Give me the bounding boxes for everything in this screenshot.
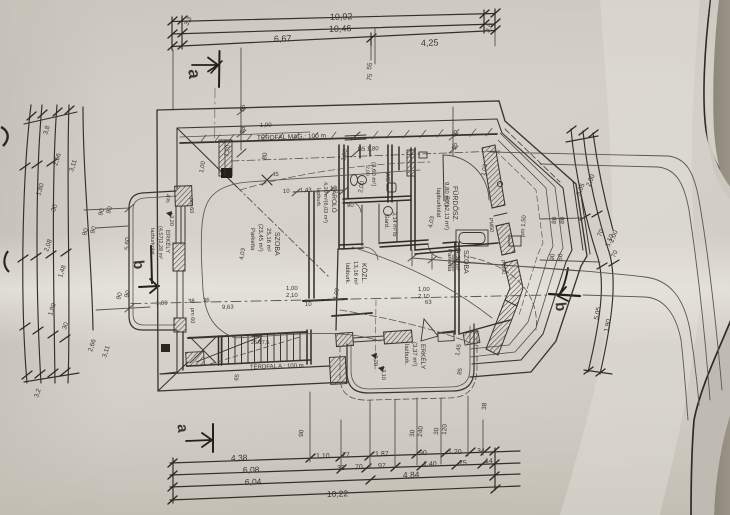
svg-text:(23,45 m²): (23,45 m²) [257,224,264,252]
svg-text:1,20: 1,20 [448,449,462,456]
svg-text:SZOBA: SZOBA [462,250,469,274]
svg-text:1,00: 1,00 [418,286,430,293]
svg-text:10,92: 10,92 [330,11,353,22]
svg-text:labburk.: labburk. [344,263,351,285]
svg-text:4%: 4% [164,194,171,203]
svg-text:(4,57)2,28 m²: (4,57)2,28 m² [157,226,163,259]
svg-text:75: 75 [459,460,467,467]
svg-text:ERKÉLY: ERKÉLY [419,344,427,370]
svg-text:34: 34 [477,448,485,455]
svg-text:b: b [130,259,148,270]
svg-text:2,10: 2,10 [286,292,298,299]
svg-text:pm 60: pm 60 [188,198,194,213]
svg-text:Parketta: Parketta [446,249,453,272]
svg-text:80: 80 [551,216,559,224]
svg-text:38: 38 [481,402,489,410]
svg-text:KÖZL.: KÖZL. [360,263,368,283]
svg-text:FÜRDŐSZ.: FÜRDŐSZ. [451,186,460,222]
svg-text:B5 1,80: B5 1,80 [358,145,380,153]
svg-text:25/17,5: 25/17,5 [251,340,269,346]
svg-text:10,46: 10,46 [329,23,352,34]
svg-text:36: 36 [203,297,211,304]
svg-text:1,00: 1,00 [260,122,273,129]
svg-text:1,87: 1,87 [375,451,389,458]
svg-text:80: 80 [559,216,567,224]
svg-text:5,60: 5,60 [124,237,131,250]
svg-text:10,22: 10,22 [327,488,349,499]
svg-text:SZOBA: SZOBA [273,232,280,256]
svg-text:lapburkolat: lapburkolat [435,188,442,218]
svg-text:1,00: 1,00 [286,285,298,292]
svg-text:30: 30 [409,429,417,437]
svg-text:4,25: 4,25 [421,37,439,48]
svg-text:+3,10: +3,10 [380,366,386,380]
svg-text:PM50: PM50 [499,260,506,275]
svg-text:38: 38 [188,298,196,305]
svg-text:4,84: 4,84 [403,469,420,480]
svg-text:lazburk.: lazburk. [403,344,410,365]
svg-text:70: 70 [355,464,363,471]
svg-text:25,16 m²: 25,16 m² [265,228,272,252]
svg-text:+3,20: +3,20 [372,352,378,366]
svg-text:10: 10 [283,188,291,195]
svg-text:14,32 m²: 14,32 m² [454,247,461,271]
svg-text:WC: WC [384,172,391,183]
svg-text:lazburkolat: lazburkolat [149,228,155,255]
svg-text:97: 97 [378,463,386,470]
svg-text:6,67: 6,67 [274,33,292,44]
svg-text:2,00: 2,00 [364,166,370,176]
svg-text:1,43: 1,43 [300,187,313,194]
svg-text:(3,37 m²): (3,37 m²) [411,342,418,366]
svg-text:ERKÉLY: ERKÉLY [164,230,172,253]
svg-text:Parketta: Parketta [249,228,256,251]
svg-text:1,80: 1,80 [156,300,169,307]
svg-text:+3,20: +3,20 [168,212,174,226]
svg-text:90: 90 [298,429,306,437]
svg-text:45: 45 [272,171,279,178]
svg-text:4,20 m²(6,03 m²): 4,20 m²(6,03 m²) [322,182,328,223]
svg-text:90: 90 [419,450,427,457]
svg-text:(3,60 m²): (3,60 m²) [370,162,377,186]
svg-text:9,63: 9,63 [222,304,235,311]
svg-text:3,14 m² lb: 3,14 m² lb [391,212,397,236]
svg-text:240: 240 [417,425,425,437]
svg-text:10: 10 [305,301,313,308]
svg-text:1,40: 1,40 [423,461,437,468]
svg-text:30: 30 [433,427,441,435]
svg-text:Gard.: Gard. [383,214,390,229]
svg-text:4,38: 4,38 [231,452,248,463]
svg-text:14: 14 [485,458,493,465]
svg-text:2,10: 2,10 [418,293,430,300]
svg-text:77: 77 [342,452,350,459]
svg-text:pm 60: pm 60 [189,308,195,323]
svg-text:90: 90 [347,202,354,209]
svg-text:6,08: 6,08 [243,464,260,475]
svg-text:120: 120 [441,423,449,435]
svg-text:13,16 m²: 13,16 m² [352,261,359,285]
svg-text:6,04: 6,04 [245,476,262,487]
svg-text:1,10: 1,10 [316,453,330,460]
